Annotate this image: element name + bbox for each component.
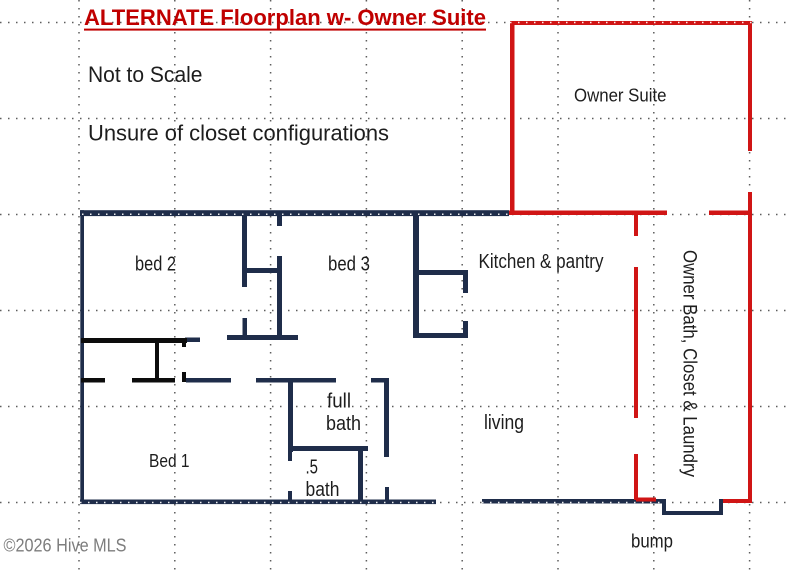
svg-text:bath: bath: [326, 413, 361, 435]
svg-text:Unsure of closet configuration: Unsure of closet configurations: [88, 121, 389, 146]
svg-text:Bed 1: Bed 1: [149, 451, 190, 471]
svg-text:Kitchen & pantry: Kitchen & pantry: [479, 251, 604, 273]
svg-text:ALTERNATE Floorplan w- Owner S: ALTERNATE Floorplan w- Owner Suite: [84, 5, 486, 30]
svg-text:Owner Suite: Owner Suite: [574, 85, 667, 106]
svg-text:bed 3: bed 3: [328, 254, 370, 276]
svg-text:bed 2: bed 2: [135, 254, 176, 276]
svg-text:Owner Bath, Closet & Laundry: Owner Bath, Closet & Laundry: [679, 250, 700, 477]
svg-text:.5: .5: [306, 457, 319, 479]
svg-text:living: living: [484, 412, 524, 434]
svg-text:bath: bath: [306, 479, 340, 501]
svg-text:bump: bump: [631, 531, 673, 553]
svg-text:©2026 Hive MLS: ©2026 Hive MLS: [4, 536, 127, 556]
svg-text:full: full: [327, 391, 351, 413]
svg-text:Not to Scale: Not to Scale: [88, 62, 203, 87]
